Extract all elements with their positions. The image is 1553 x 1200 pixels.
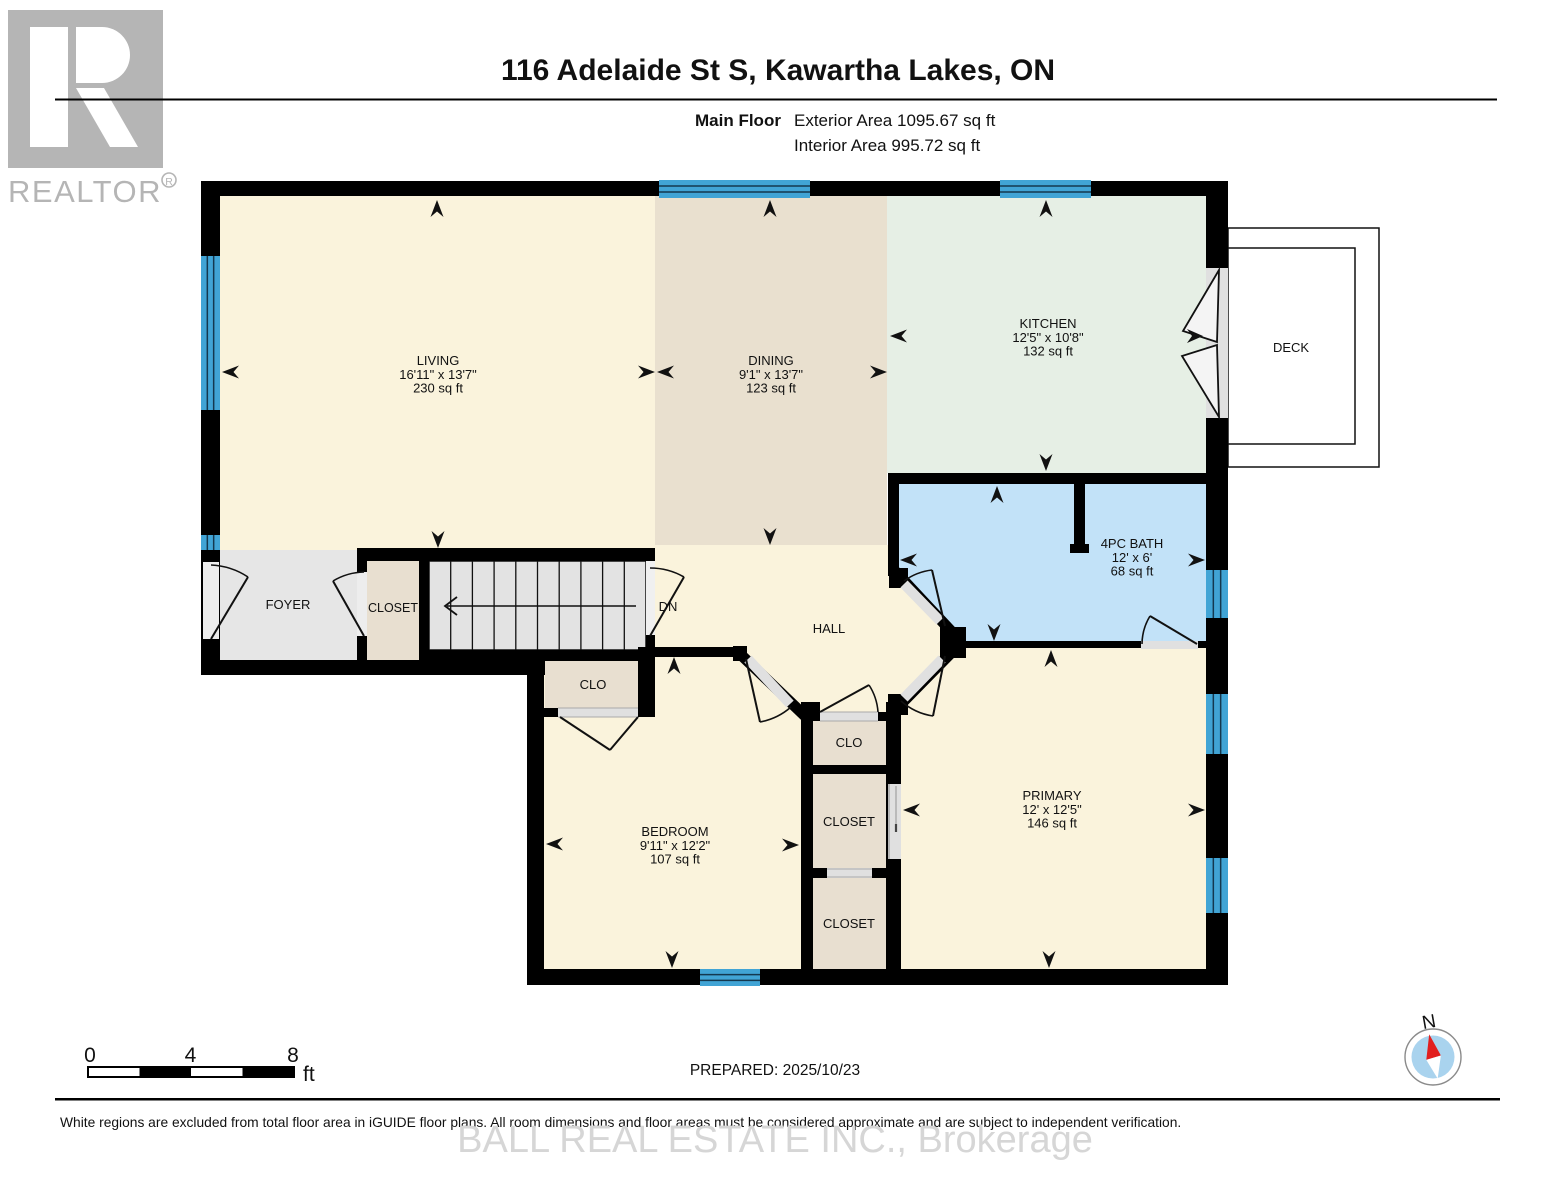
svg-text:Main Floor: Main Floor (695, 111, 781, 130)
svg-text:9'11" x 12'2": 9'11" x 12'2" (640, 838, 711, 853)
svg-text:CLOSET: CLOSET (368, 601, 418, 615)
svg-text:116 Adelaide St S, Kawartha La: 116 Adelaide St S, Kawartha Lakes, ON (501, 54, 1055, 87)
svg-text:CLOSET: CLOSET (823, 916, 875, 931)
svg-text:146 sq ft: 146 sq ft (1027, 816, 1077, 831)
svg-text:ft: ft (303, 1063, 315, 1086)
svg-text:107 sq ft: 107 sq ft (650, 852, 700, 867)
svg-text:Interior Area 995.72 sq ft: Interior Area 995.72 sq ft (794, 136, 980, 155)
svg-text:KITCHEN: KITCHEN (1019, 316, 1076, 331)
svg-text:9'1" x 13'7": 9'1" x 13'7" (739, 367, 803, 382)
svg-text:DECK: DECK (1273, 340, 1309, 355)
svg-text:R: R (165, 176, 173, 188)
svg-text:FOYER: FOYER (266, 597, 311, 612)
svg-text:4PC BATH: 4PC BATH (1101, 536, 1164, 551)
svg-text:132 sq ft: 132 sq ft (1023, 344, 1073, 359)
svg-text:CLO: CLO (836, 735, 863, 750)
svg-text:8: 8 (287, 1044, 299, 1067)
svg-text:CLO: CLO (580, 677, 607, 692)
svg-text:12' x 12'5": 12' x 12'5" (1022, 802, 1082, 817)
svg-text:PREPARED: 2025/10/23: PREPARED: 2025/10/23 (690, 1062, 860, 1079)
svg-text:REALTOR: REALTOR (8, 174, 162, 209)
svg-text:230 sq ft: 230 sq ft (413, 381, 463, 396)
svg-text:BALL REAL ESTATE INC., Brokera: BALL REAL ESTATE INC., Brokerage (457, 1119, 1093, 1161)
svg-text:68 sq ft: 68 sq ft (1111, 564, 1154, 579)
svg-text:12'5" x 10'8": 12'5" x 10'8" (1012, 330, 1084, 345)
svg-text:16'11" x 13'7": 16'11" x 13'7" (399, 367, 477, 382)
svg-text:Exterior Area 1095.67 sq ft: Exterior Area 1095.67 sq ft (794, 111, 996, 130)
svg-text:HALL: HALL (813, 621, 846, 636)
svg-text:123 sq ft: 123 sq ft (746, 381, 796, 396)
svg-text:4: 4 (185, 1044, 197, 1067)
svg-text:DINING: DINING (748, 353, 794, 368)
svg-text:0: 0 (84, 1044, 96, 1067)
svg-text:DN: DN (659, 599, 678, 614)
svg-text:BEDROOM: BEDROOM (641, 824, 708, 839)
svg-text:12' x 6': 12' x 6' (1112, 550, 1152, 565)
svg-text:CLOSET: CLOSET (823, 814, 875, 829)
svg-text:PRIMARY: PRIMARY (1023, 788, 1082, 803)
svg-text:LIVING: LIVING (417, 353, 460, 368)
